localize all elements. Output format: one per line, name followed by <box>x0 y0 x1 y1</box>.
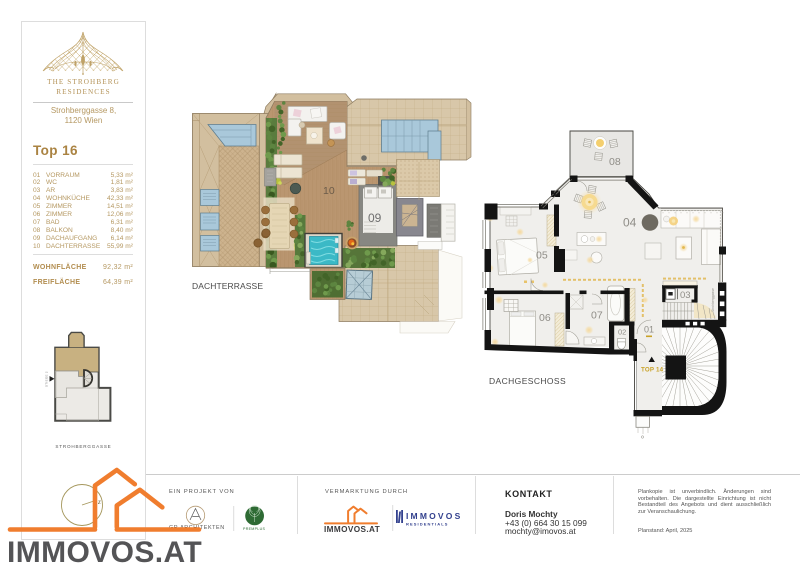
svg-text:TOP 14: TOP 14 <box>641 367 664 374</box>
svg-text:07: 07 <box>591 310 603 322</box>
svg-text:05: 05 <box>536 250 548 262</box>
svg-text:10: 10 <box>323 185 335 197</box>
svg-text:04: 04 <box>623 216 637 230</box>
svg-text:IMMOVOS: IMMOVOS <box>406 511 463 521</box>
svg-text:01: 01 <box>644 325 654 335</box>
svg-text:Strohberggasse: Strohberggasse <box>711 288 715 312</box>
svg-text:02: 02 <box>618 328 626 337</box>
svg-text:08: 08 <box>609 156 621 168</box>
svg-text:z: z <box>97 498 101 506</box>
svg-text:06: 06 <box>539 312 551 324</box>
svg-text:09: 09 <box>368 211 382 225</box>
svg-text:03: 03 <box>680 290 691 301</box>
svg-text:RESIDENTIALS: RESIDENTIALS <box>406 522 449 527</box>
